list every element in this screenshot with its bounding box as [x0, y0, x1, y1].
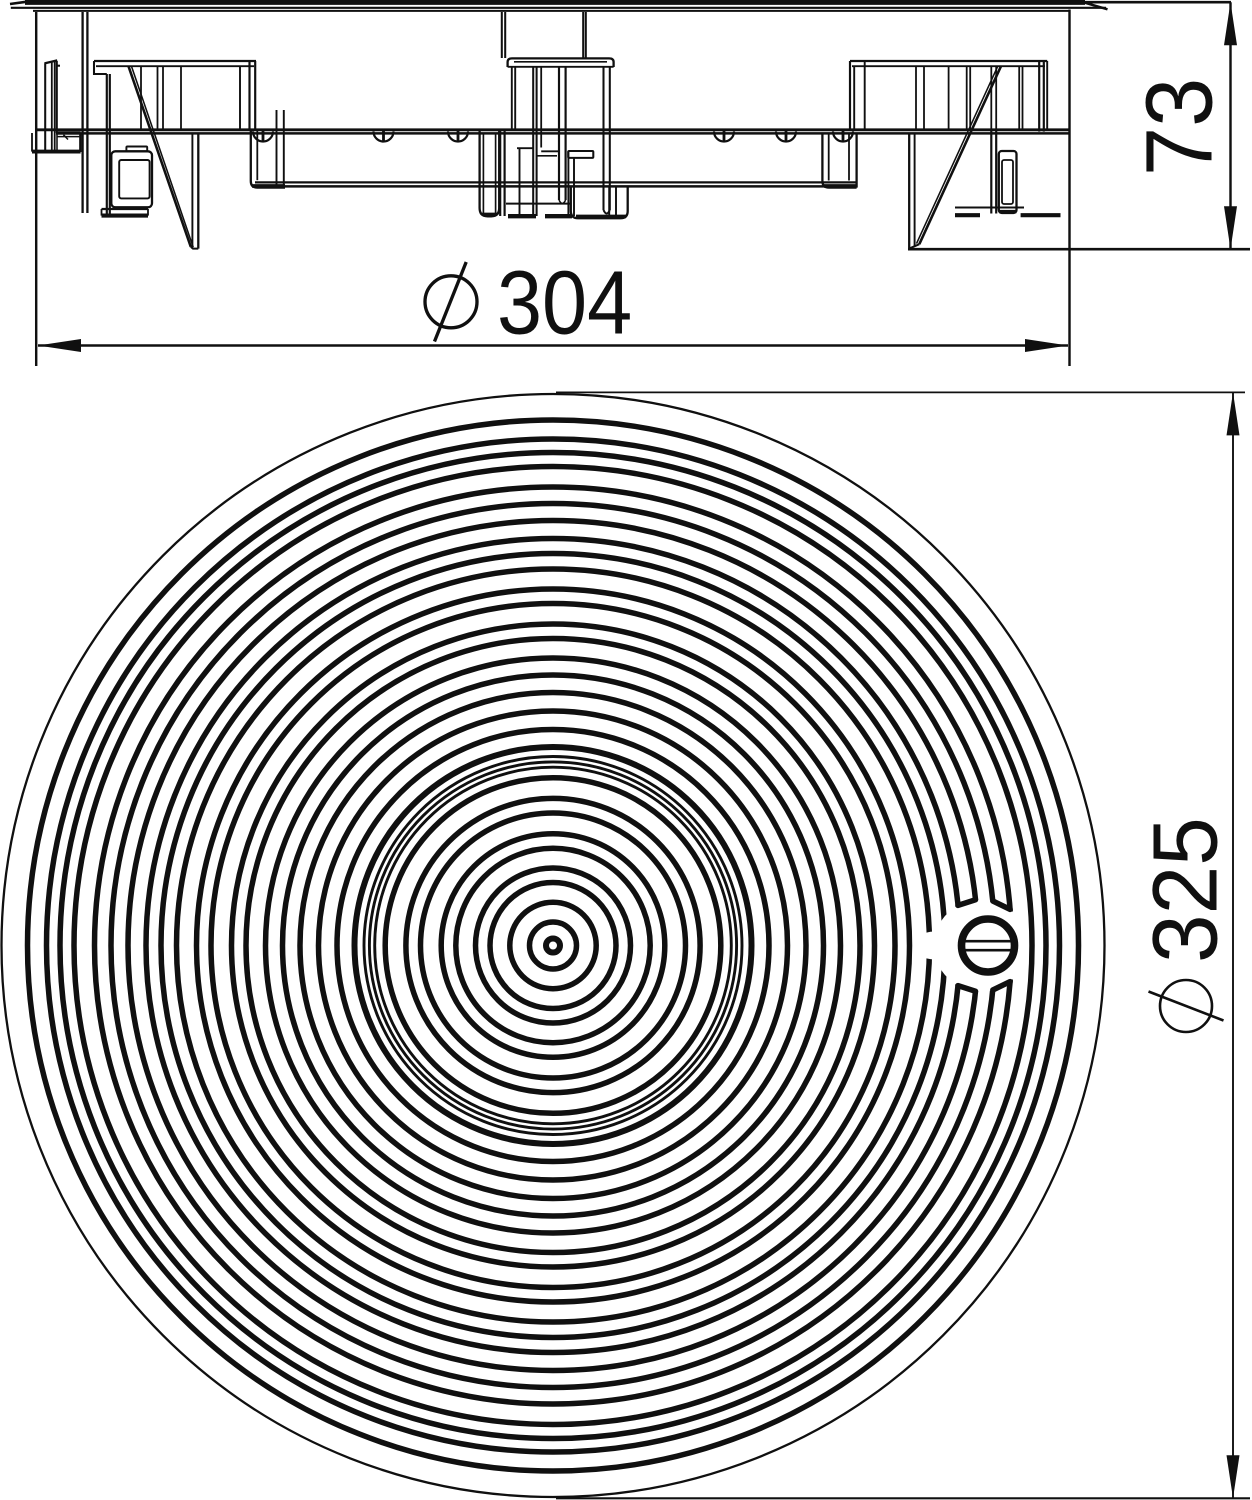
svg-text:73: 73	[1127, 78, 1233, 176]
svg-text:304: 304	[497, 253, 632, 354]
svg-text:325: 325	[1134, 817, 1237, 963]
